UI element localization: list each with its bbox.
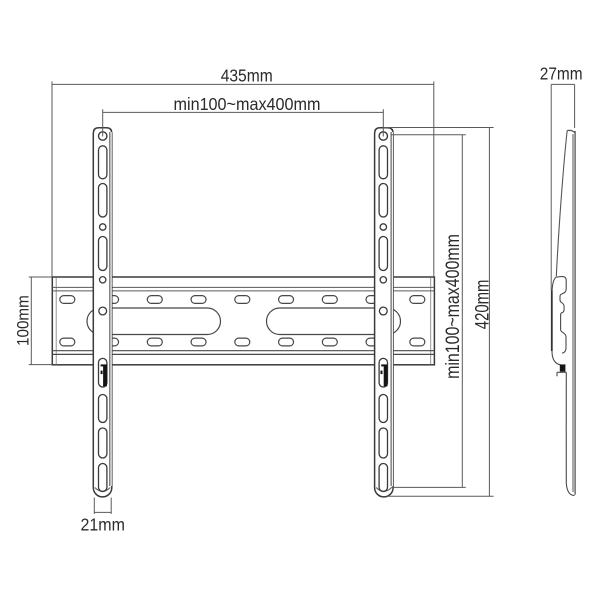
svg-text:min100~max400mm: min100~max400mm	[442, 234, 464, 379]
svg-text:min100~max400mm: min100~max400mm	[174, 94, 321, 114]
svg-text:27mm: 27mm	[540, 64, 583, 84]
svg-text:21mm: 21mm	[81, 514, 125, 534]
svg-text:435mm: 435mm	[221, 65, 273, 85]
svg-text:420mm: 420mm	[471, 280, 493, 330]
svg-text:100mm: 100mm	[14, 295, 33, 346]
